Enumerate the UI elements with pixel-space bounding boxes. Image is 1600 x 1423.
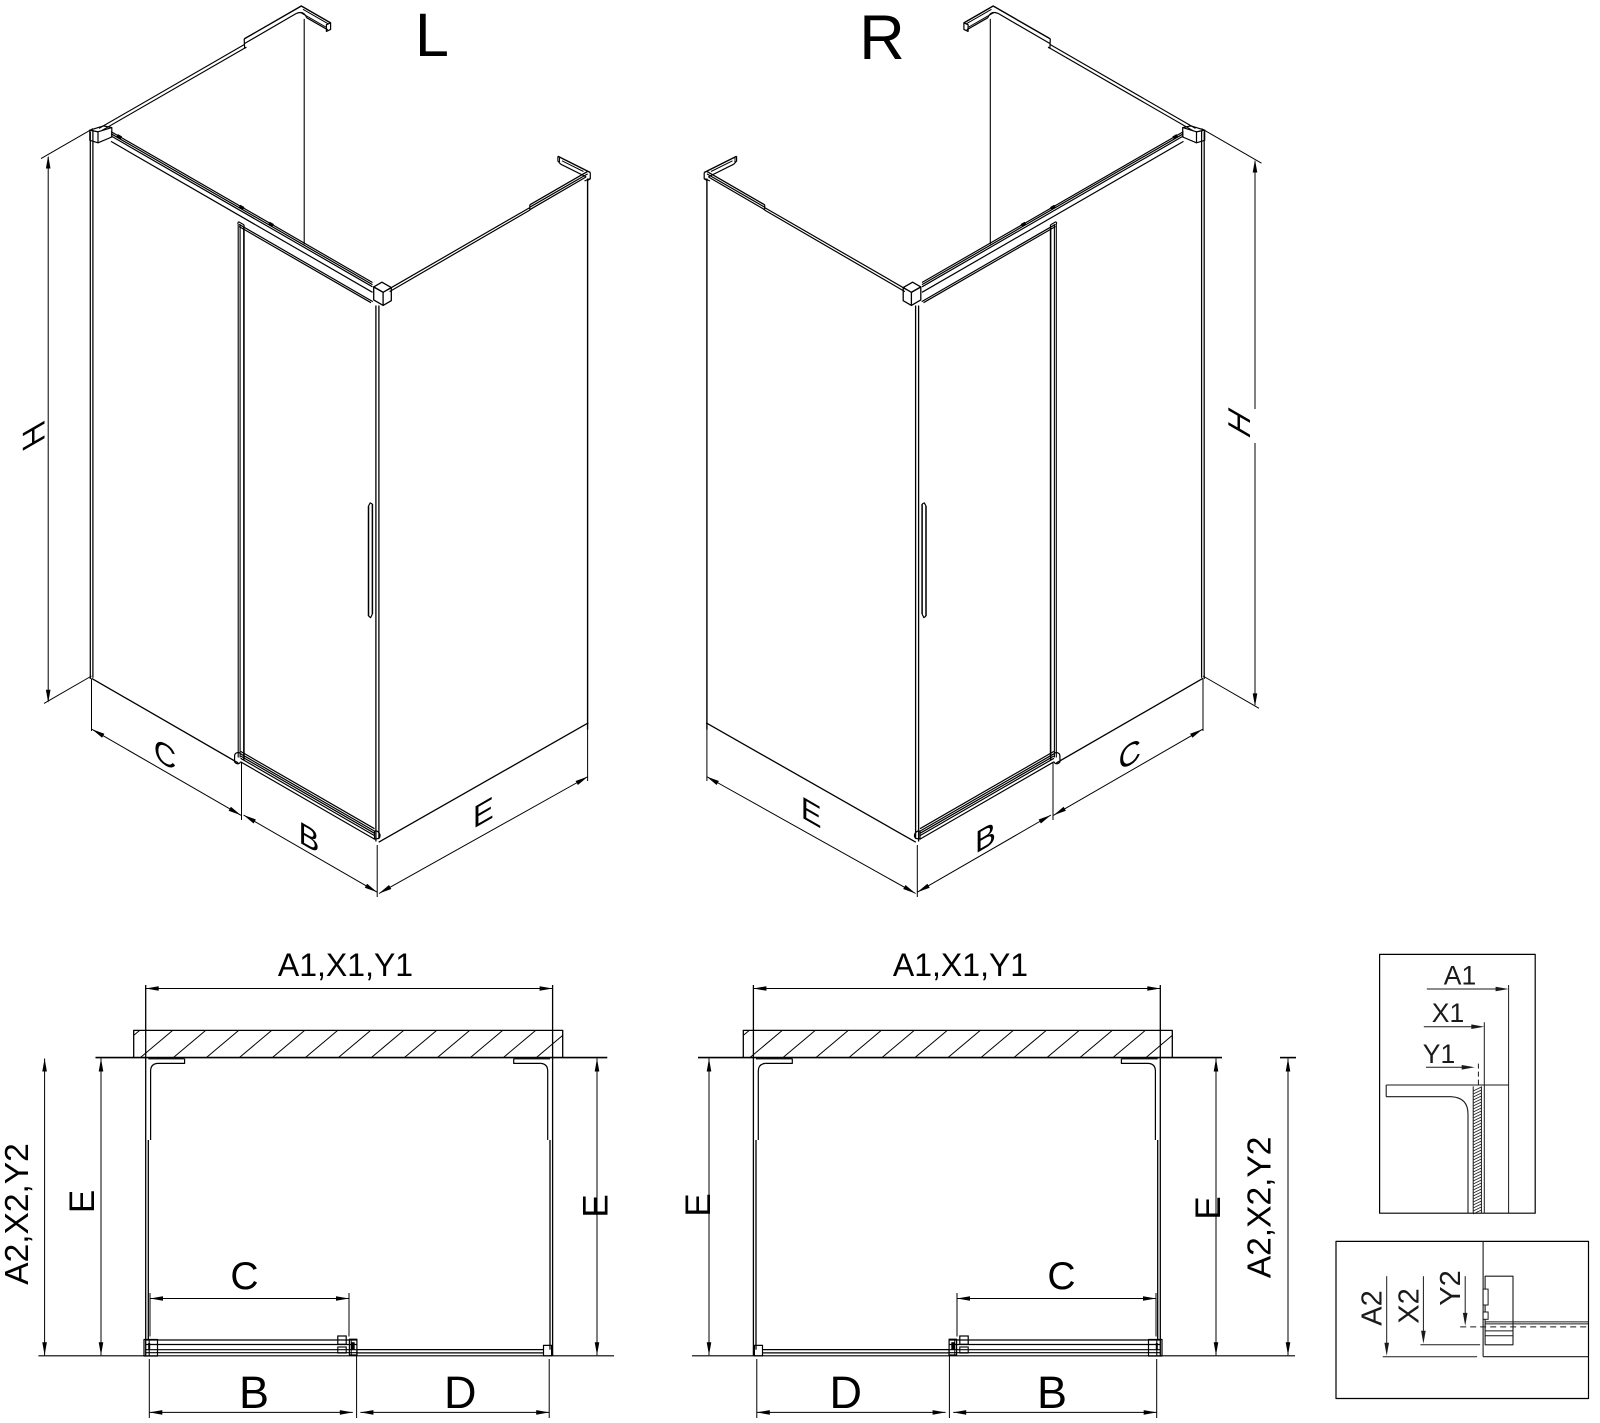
svg-text:A1: A1 (1444, 961, 1476, 991)
svg-text:E: E (63, 1190, 102, 1213)
svg-text:R: R (859, 3, 905, 73)
svg-text:Y2: Y2 (1435, 1270, 1467, 1305)
svg-text:C: C (230, 1255, 258, 1298)
svg-text:C: C (1047, 1255, 1075, 1298)
svg-text:B: B (239, 1367, 269, 1418)
svg-text:B: B (1037, 1367, 1067, 1418)
svg-text:A1,X1,Y1: A1,X1,Y1 (893, 947, 1028, 983)
svg-text:D: D (444, 1367, 477, 1418)
svg-text:X2: X2 (1394, 1288, 1426, 1323)
svg-text:A2,X2,Y2: A2,X2,Y2 (1242, 1137, 1279, 1279)
svg-text:A2,X2,Y2: A2,X2,Y2 (0, 1143, 36, 1285)
svg-text:E: E (577, 1194, 616, 1217)
svg-text:A1,X1,Y1: A1,X1,Y1 (278, 947, 413, 983)
svg-text:D: D (829, 1367, 862, 1418)
svg-text:E: E (679, 1193, 718, 1216)
svg-text:X1: X1 (1432, 998, 1464, 1028)
svg-text:E: E (1189, 1196, 1228, 1219)
svg-text:L: L (415, 1, 449, 69)
svg-text:Y1: Y1 (1423, 1039, 1455, 1069)
svg-text:A2: A2 (1357, 1290, 1389, 1325)
